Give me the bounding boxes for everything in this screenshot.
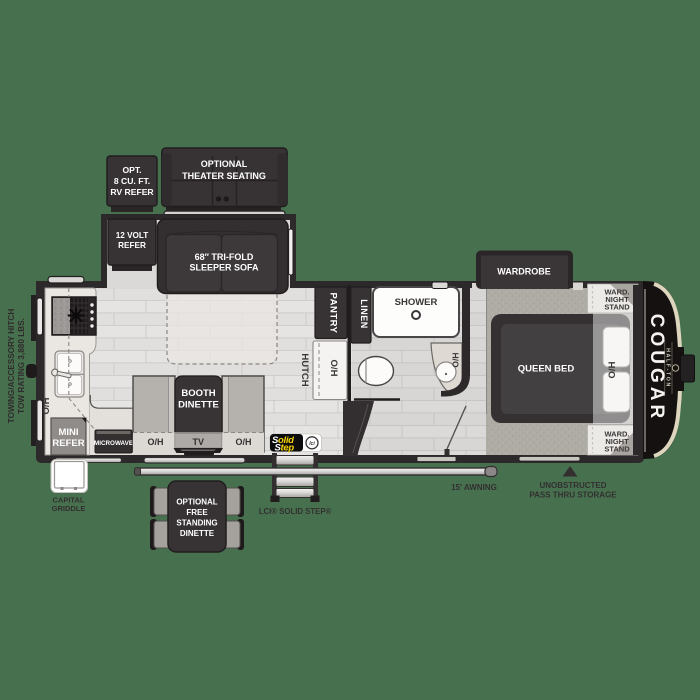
svg-text:STANDING: STANDING (176, 519, 217, 528)
svg-text:tep: tep (281, 443, 295, 454)
svg-text:SHOWER: SHOWER (395, 297, 438, 308)
svg-text:TV: TV (193, 437, 205, 447)
svg-text:PASS THRU STORAGE: PASS THRU STORAGE (529, 491, 617, 500)
svg-text:8 CU. FT.: 8 CU. FT. (114, 176, 150, 186)
svg-text:REFER: REFER (52, 438, 84, 449)
svg-text:QUEEN BED: QUEEN BED (518, 364, 575, 375)
svg-text:FREE: FREE (186, 508, 208, 517)
svg-text:WARDROBE: WARDROBE (497, 267, 551, 277)
svg-text:REFER: REFER (118, 241, 146, 250)
svg-text:H/O: H/O (451, 352, 461, 368)
svg-text:BOOTH: BOOTH (181, 388, 215, 399)
svg-text:TOWING/ACCESSORY HITCH: TOWING/ACCESSORY HITCH (7, 309, 16, 424)
svg-text:LCI® SOLID STEP®: LCI® SOLID STEP® (259, 507, 332, 516)
svg-text:O/H: O/H (328, 360, 339, 377)
svg-text:OPTIONAL: OPTIONAL (201, 159, 248, 169)
svg-text:UNOBSTRUCTED: UNOBSTRUCTED (539, 481, 606, 490)
svg-text:68″ TRI-FOLD: 68″ TRI-FOLD (195, 252, 254, 262)
svg-text:DINETTE: DINETTE (180, 529, 215, 538)
svg-text:SLEEPER SOFA: SLEEPER SOFA (189, 263, 259, 273)
svg-text:OPT.: OPT. (122, 165, 141, 175)
svg-text:RV REFER: RV REFER (110, 187, 154, 197)
svg-text:PANTRY: PANTRY (328, 293, 339, 334)
svg-text:THEATER SEATING: THEATER SEATING (182, 171, 266, 181)
svg-text:15' AWNING: 15' AWNING (451, 483, 497, 492)
svg-text:HALF-TON: HALF-TON (665, 348, 671, 388)
svg-text:O/H: O/H (607, 361, 618, 378)
svg-text:STAND: STAND (604, 445, 630, 454)
svg-text:TOW RATING 3,880 LBS.: TOW RATING 3,880 LBS. (17, 318, 26, 414)
svg-text:OPTIONAL: OPTIONAL (176, 498, 217, 507)
svg-text:MICROWAVE: MICROWAVE (94, 440, 133, 447)
svg-text:O/H: O/H (235, 437, 251, 447)
svg-text:COUGAR: COUGAR (646, 314, 667, 422)
svg-text:MINI: MINI (58, 427, 78, 438)
svg-text:lci: lci (309, 441, 315, 447)
svg-text:O/H: O/H (147, 437, 163, 447)
svg-text:LINEN: LINEN (359, 299, 369, 329)
svg-text:HUTCH: HUTCH (299, 353, 310, 386)
svg-text:DINETTE: DINETTE (178, 400, 219, 411)
svg-text:12 VOLT: 12 VOLT (116, 231, 149, 240)
svg-text:GRIDDLE: GRIDDLE (52, 504, 86, 513)
svg-text:STAND: STAND (604, 303, 630, 312)
